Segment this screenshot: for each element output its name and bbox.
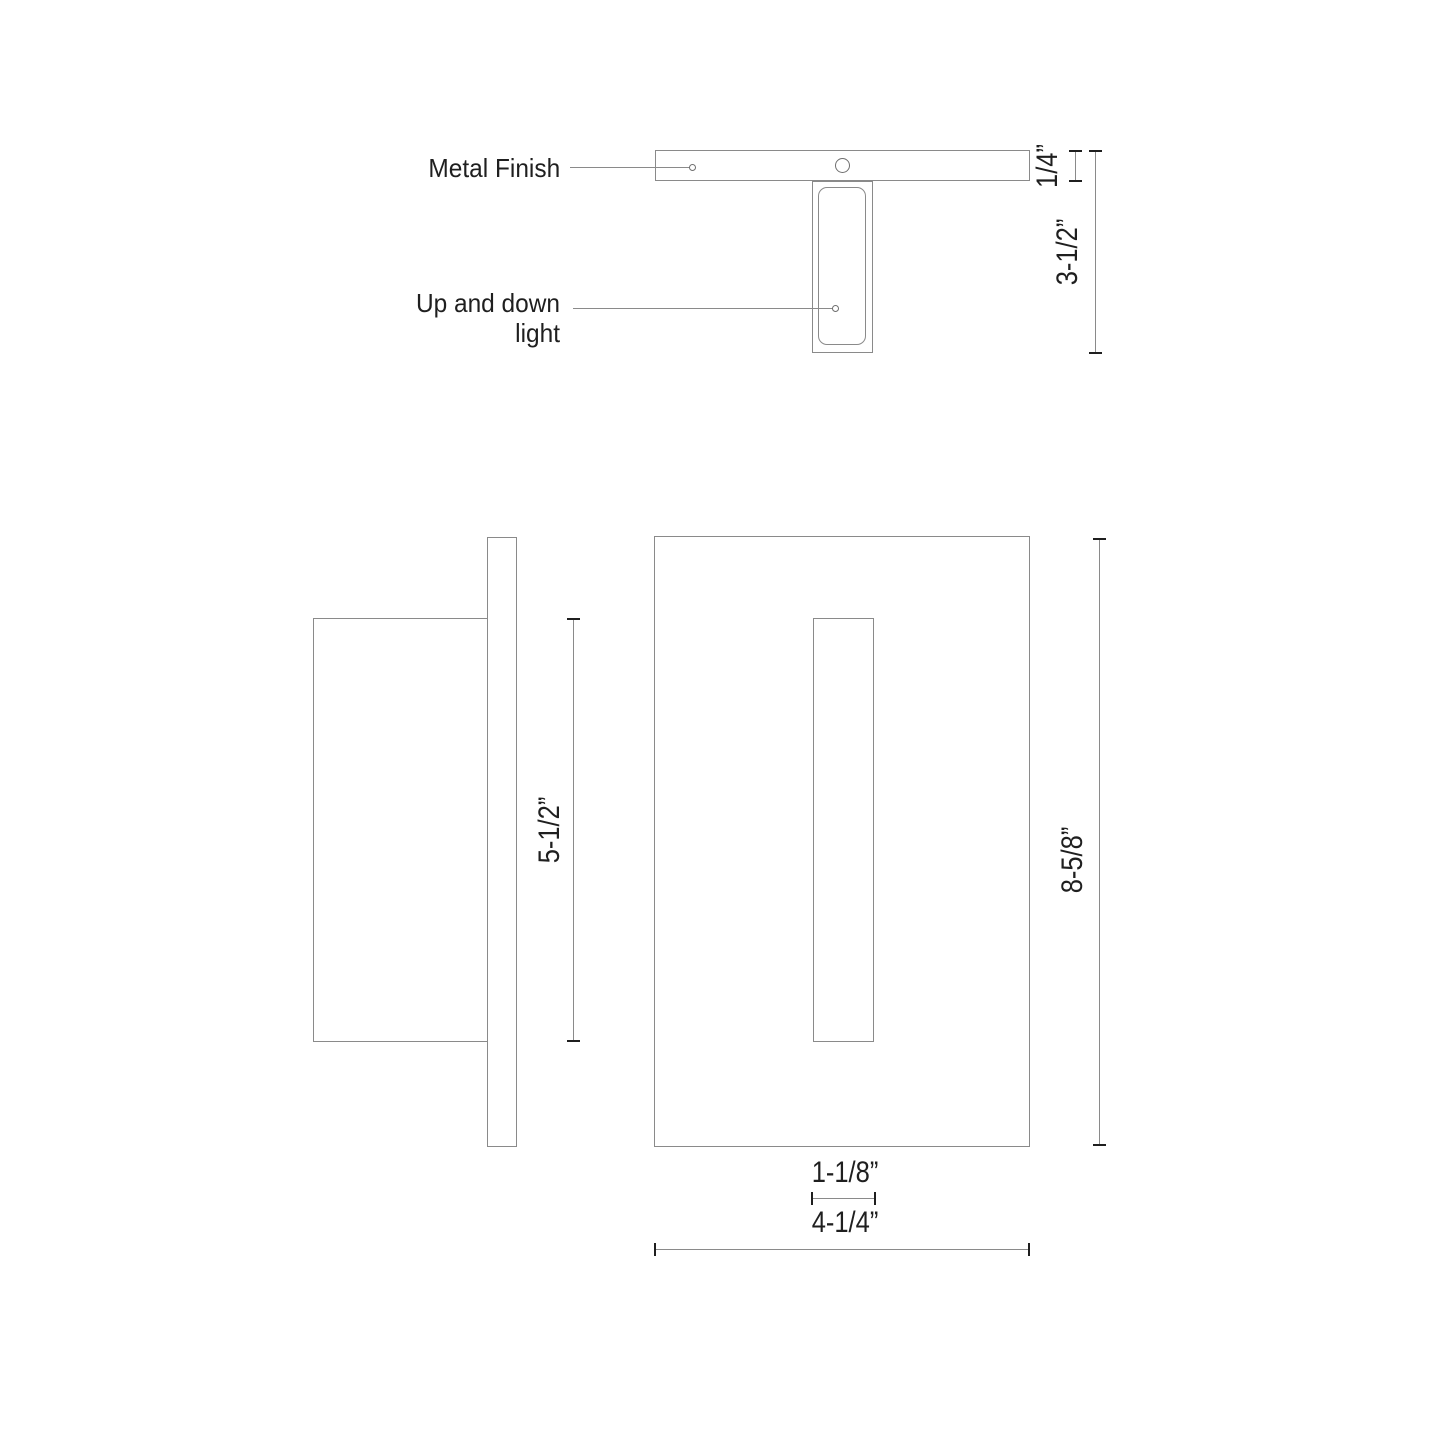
dim-slot-width-line [812,1198,875,1199]
dim-slot-width-label: 1-1/8” [786,1158,905,1188]
dim-overall-height-line [1099,539,1100,1145]
dim-overall-width-line [655,1249,1029,1250]
dim-tick [654,1243,656,1256]
front-view: 8-5/8” 1-1/8” 4-1/4” [0,0,1445,1445]
dim-overall-width-label: 4-1/4” [786,1208,905,1238]
dim-overall-height-label: 8-5/8” [1058,818,1088,903]
technical-drawing-canvas: Metal Finish Up and down light 1/4” 3-1/… [0,0,1445,1445]
dim-tick [874,1192,876,1205]
front-view-light-slot [813,618,874,1042]
dim-tick [811,1192,813,1205]
dim-tick [1093,1144,1106,1146]
dim-tick [1093,538,1106,540]
dim-tick [1028,1243,1030,1256]
